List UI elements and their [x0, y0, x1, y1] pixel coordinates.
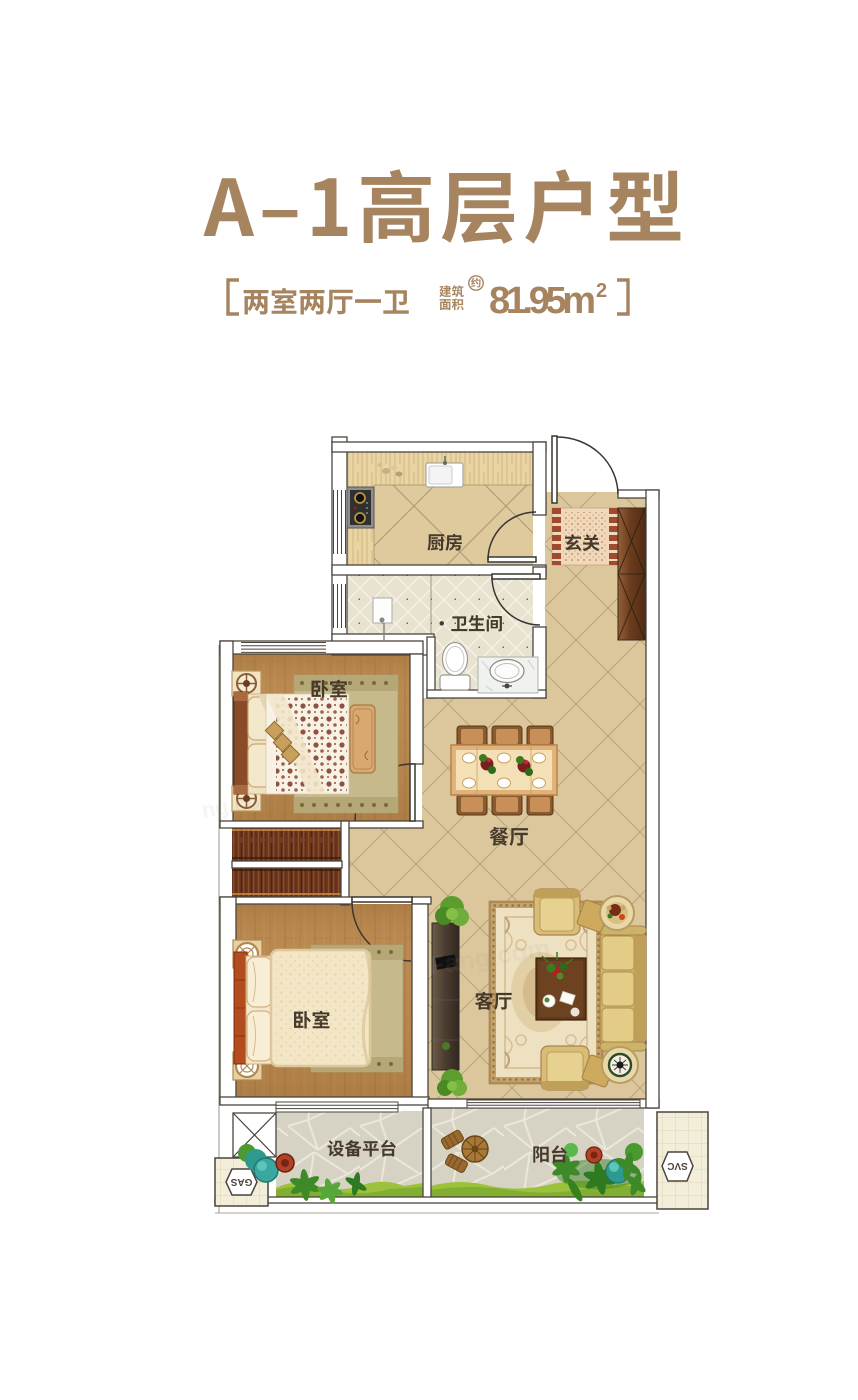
svg-text:81.95m: 81.95m	[489, 280, 596, 322]
svg-text:SVC: SVC	[667, 1160, 688, 1171]
svg-text:GAS: GAS	[230, 1176, 252, 1187]
svg-text:2: 2	[596, 280, 607, 302]
